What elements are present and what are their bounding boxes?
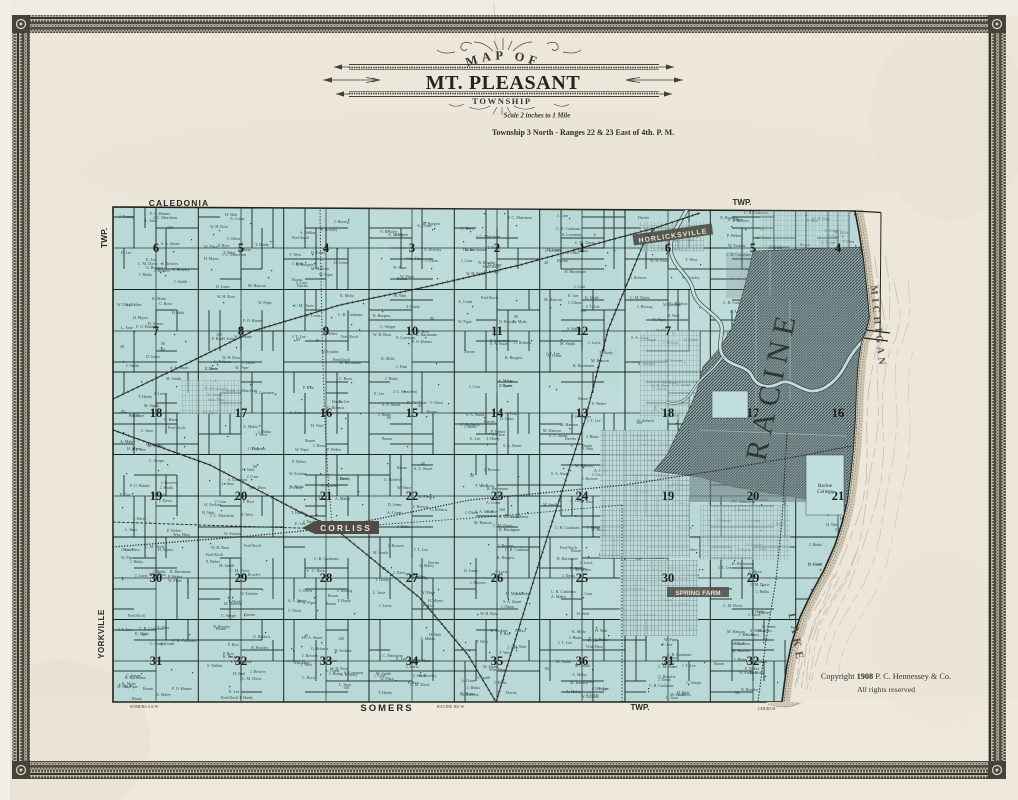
svg-text:E. Lee: E. Lee [374,391,385,396]
svg-text:S. A. Stuart: S. A. Stuart [414,466,433,471]
svg-text:6: 6 [153,241,159,255]
svg-text:S. A. Stuart: S. A. Stuart [466,412,485,417]
svg-text:R. Burgess: R. Burgess [373,313,391,318]
svg-text:W. H. Ross: W. H. Ross [373,332,392,337]
svg-text:J. Lavis: J. Lavis [748,612,761,617]
svg-text:80: 80 [545,666,549,671]
svg-text:80: 80 [253,464,257,469]
svg-text:C. Seeger: C. Seeger [686,680,702,685]
svg-text:W. Erskine: W. Erskine [334,648,352,653]
svg-text:T. Hardy: T. Hardy [228,599,242,604]
svg-text:P. Rice: P. Rice [228,642,239,647]
svg-text:R. Hartmann: R. Hartmann [573,363,594,368]
svg-text:Township 3 North - Ranges 22 &: Township 3 North - Ranges 22 & 23 East o… [492,128,674,137]
svg-text:T. Hardy: T. Hardy [138,394,152,399]
svg-text:M. Smith: M. Smith [560,341,575,346]
svg-text:J. Bowers: J. Bowers [545,248,561,253]
svg-text:CHURCH: CHURCH [758,706,775,711]
svg-text:N. Rowley: N. Rowley [251,645,268,650]
svg-text:D. Jones: D. Jones [334,260,348,265]
svg-text:J. Davis: J. Davis [494,680,507,685]
svg-text:G. Roberts: G. Roberts [461,692,479,697]
svg-text:P. Weber: P. Weber [168,574,183,579]
svg-text:22: 22 [406,489,419,503]
svg-text:D. Jones: D. Jones [146,354,160,359]
svg-text:J. Bowers: J. Bowers [250,669,266,674]
svg-text:21: 21 [320,489,333,503]
svg-text:L. Saxe: L. Saxe [339,682,351,687]
svg-text:160: 160 [734,690,740,695]
svg-text:R. Hartmann: R. Hartmann [416,332,437,337]
svg-text:N. Rowley: N. Rowley [340,672,357,677]
svg-text:W. H. Ross: W. H. Ross [211,545,230,550]
svg-text:5: 5 [750,241,756,255]
svg-text:J. Bowers: J. Bowers [302,653,318,658]
svg-text:P. Weber: P. Weber [292,459,307,464]
svg-text:J. Bowers: J. Bowers [484,467,500,472]
svg-text:Davies: Davies [759,610,771,615]
svg-text:J. Case: J. Case [461,258,473,263]
svg-text:J. Herzog: J. Herzog [334,219,349,224]
svg-text:80: 80 [161,341,165,346]
svg-text:J. Bowers: J. Bowers [388,543,404,548]
svg-text:19: 19 [150,489,163,503]
svg-text:D. Jones: D. Jones [762,624,776,629]
svg-text:E. Lee: E. Lee [470,436,481,441]
svg-text:K. Mohr: K. Mohr [381,356,395,361]
svg-text:H. Wait: H. Wait [311,423,324,428]
svg-text:J. Binks: J. Binks [397,524,410,529]
svg-text:J. Olsen: J. Olsen [289,485,302,490]
svg-text:H. Myers: H. Myers [506,591,522,596]
svg-text:S. A. Stuart: S. A. Stuart [503,443,522,448]
svg-text:MT. PLEASANT: MT. PLEASANT [426,72,581,94]
svg-text:Wm. Hess: Wm. Hess [249,485,266,490]
svg-text:A. Crane: A. Crane [461,678,476,683]
svg-text:F. O. Hunter: F. O. Hunter [130,483,151,488]
svg-text:M. Smith: M. Smith [543,502,558,507]
svg-text:C. Born: C. Born [159,301,172,306]
svg-text:5: 5 [238,241,244,255]
svg-text:M. Hanson: M. Hanson [575,463,593,468]
svg-text:C. Seeger: C. Seeger [221,613,237,618]
svg-text:J. Bowers: J. Bowers [470,580,486,585]
svg-text:J. Smith: J. Smith [477,675,490,680]
svg-text:15: 15 [406,406,419,420]
svg-text:J. Lavis: J. Lavis [586,692,599,697]
svg-text:J. Binks: J. Binks [139,272,152,277]
svg-text:E. Lee: E. Lee [568,293,579,298]
svg-text:TWP.: TWP. [631,703,650,712]
svg-text:Braun: Braun [427,409,437,414]
svg-text:Davies: Davies [638,215,650,220]
svg-text:J. T. Lee: J. T. Lee [595,686,609,691]
svg-text:T. Hardy: T. Hardy [337,598,351,603]
svg-text:3: 3 [409,241,415,255]
svg-text:TOWNSHIP: TOWNSHIP [472,96,531,106]
svg-text:L. Saxe: L. Saxe [125,527,137,532]
svg-text:J. Binks: J. Binks [464,424,477,429]
svg-text:TWP.: TWP. [99,228,109,248]
svg-text:P. Rice: P. Rice [218,243,229,248]
svg-text:SPRING FARM: SPRING FARM [675,590,720,597]
svg-text:J. Lavis: J. Lavis [205,366,218,371]
svg-text:H. Myers: H. Myers [204,256,220,261]
svg-text:T. West: T. West [289,252,302,257]
svg-text:40: 40 [418,403,422,408]
svg-text:Fred Koch: Fred Koch [244,543,261,548]
svg-text:W. Place: W. Place [400,274,414,279]
svg-text:J. Case: J. Case [574,284,586,289]
svg-text:W. Piper: W. Piper [458,319,473,324]
svg-text:4: 4 [323,241,330,255]
svg-text:M. Hanson: M. Hanson [474,520,492,525]
svg-text:N. Rowley: N. Rowley [320,227,337,232]
svg-text:T. West: T. West [241,512,254,517]
svg-text:N. Rowley: N. Rowley [321,483,338,488]
svg-text:13: 13 [576,406,589,420]
svg-text:Racine: Racine [818,484,833,489]
svg-text:P. Weber: P. Weber [592,401,607,406]
svg-text:M. Smith: M. Smith [166,376,181,381]
svg-text:H. Wait: H. Wait [677,690,690,695]
svg-text:W. H. Ross: W. H. Ross [650,258,669,263]
svg-text:C. B. Cushman: C. B. Cushman [139,626,163,631]
svg-text:H. Wait: H. Wait [233,671,246,676]
svg-text:J. C. Meachem: J. C. Meachem [476,234,501,239]
svg-text:C. M. Davis: C. M. Davis [723,603,743,608]
svg-text:16: 16 [832,406,845,420]
svg-text:TWP.: TWP. [733,198,752,207]
svg-text:6: 6 [665,241,671,255]
svg-text:H. Myers: H. Myers [133,315,149,320]
svg-text:J. C. Meachem: J. C. Meachem [210,513,235,518]
svg-text:F. O. Hunter: F. O. Hunter [150,211,171,216]
svg-text:8: 8 [238,324,244,338]
svg-text:J. Olsen: J. Olsen [299,588,312,593]
svg-text:T. West: T. West [475,483,488,488]
svg-text:S. Lorenson: S. Lorenson [490,338,509,343]
svg-text:J. Herzog: J. Herzog [413,504,428,509]
svg-text:L. Saxe: L. Saxe [290,410,302,415]
svg-text:J. Herzog: J. Herzog [119,214,134,219]
svg-text:T. West: T. West [685,257,698,262]
svg-text:P. Rice: P. Rice [408,680,419,685]
svg-text:R. Burgess: R. Burgess [423,221,441,226]
svg-text:33: 33 [320,654,333,668]
svg-text:Wm. Hess: Wm. Hess [123,547,140,552]
svg-text:S. Lorenson: S. Lorenson [255,390,274,395]
svg-text:J. T. Lee: J. T. Lee [118,627,132,632]
svg-text:R. Hartmann: R. Hartmann [557,556,578,561]
svg-text:80: 80 [514,314,518,319]
svg-text:J. Smith: J. Smith [126,363,139,368]
svg-text:P. Rice: P. Rice [223,651,234,656]
svg-text:E. Lee: E. Lee [588,638,599,643]
svg-text:H. Wait: H. Wait [667,313,680,318]
svg-text:7: 7 [665,324,671,338]
svg-text:40: 40 [297,599,301,604]
svg-text:160: 160 [167,225,173,230]
svg-text:19: 19 [662,489,675,503]
svg-text:R. Burgess: R. Burgess [497,555,515,560]
svg-text:D. Jones: D. Jones [464,568,478,573]
svg-text:14: 14 [491,406,504,420]
svg-text:J. Olsen: J. Olsen [501,604,514,609]
svg-text:W. Erskine: W. Erskine [728,243,746,248]
svg-text:32: 32 [747,654,760,668]
svg-text:J. Case: J. Case [557,213,569,218]
svg-text:40: 40 [315,338,319,343]
svg-text:R. Burgess: R. Burgess [505,355,523,360]
svg-text:20: 20 [747,489,760,503]
svg-text:Copyright 1908 P. C. Hennessey: Copyright 1908 P. C. Hennessey & Co. [821,672,951,681]
svg-text:M. Smith: M. Smith [376,671,391,676]
svg-text:32: 32 [235,654,248,668]
svg-text:E. Lee: E. Lee [121,250,132,255]
svg-text:Davies: Davies [244,612,256,617]
svg-text:Wm. Hess: Wm. Hess [406,256,423,261]
svg-text:J. Olsen: J. Olsen [425,258,438,263]
svg-text:R. Hartmann: R. Hartmann [499,527,520,532]
svg-text:F. O. Hunter: F. O. Hunter [172,686,193,691]
svg-text:F. O. Hunter: F. O. Hunter [412,339,433,344]
svg-text:W. Erskine: W. Erskine [289,471,307,476]
svg-text:RACINE RD W.: RACINE RD W. [437,704,465,709]
svg-text:W. H. Ross: W. H. Ross [330,666,349,671]
svg-text:34: 34 [406,654,419,668]
svg-text:J. Binks: J. Binks [809,542,822,547]
svg-text:N. Rowley: N. Rowley [172,267,189,272]
svg-text:P. Weber: P. Weber [491,429,506,434]
svg-text:160: 160 [499,507,505,512]
svg-text:T. Hardy: T. Hardy [378,690,392,695]
svg-text:28: 28 [320,571,333,585]
svg-text:Davies: Davies [332,399,344,404]
svg-text:G. Roberts: G. Roberts [514,340,532,345]
svg-text:J. T. Lee: J. T. Lee [718,565,732,570]
svg-text:K. Mohr: K. Mohr [585,295,599,300]
svg-text:W. Erskine: W. Erskine [490,628,508,633]
svg-text:G. Roberts: G. Roberts [384,477,402,482]
svg-text:Braun: Braun [571,548,581,553]
svg-text:J. Smith: J. Smith [413,673,426,678]
svg-text:J. Davis: J. Davis [658,677,671,682]
svg-text:31: 31 [662,654,675,668]
svg-text:E. Lee: E. Lee [120,492,131,497]
svg-text:C. B. Cushman: C. B. Cushman [556,226,580,231]
svg-text:J. Binks: J. Binks [385,376,398,381]
svg-text:T. Hardy: T. Hardy [406,304,420,309]
svg-text:J. C. Meachem: J. C. Meachem [393,389,418,394]
svg-text:K. Mohr: K. Mohr [572,629,586,634]
svg-text:W. Erskine: W. Erskine [224,531,242,536]
svg-text:P. Rice: P. Rice [303,385,314,390]
svg-text:W. Piper: W. Piper [235,365,250,370]
svg-text:J. Fink: J. Fink [506,411,517,416]
svg-text:29: 29 [747,571,760,585]
svg-text:J. Case: J. Case [247,474,259,479]
svg-text:H. Wait: H. Wait [595,628,608,633]
svg-text:H. Wait: H. Wait [394,293,407,298]
svg-text:H. Wait: H. Wait [172,310,185,315]
svg-text:A. Crane: A. Crane [808,561,823,566]
svg-text:18: 18 [662,406,675,420]
svg-text:W. Piper: W. Piper [295,447,310,452]
svg-text:L. Saxe: L. Saxe [121,325,133,330]
svg-text:T. Hardy: T. Hardy [239,695,253,700]
svg-text:P. Weber: P. Weber [327,447,342,452]
svg-text:J. T. Lee: J. T. Lee [682,663,696,668]
svg-text:G. Roberts: G. Roberts [629,275,647,280]
svg-text:W. Piper: W. Piper [258,300,273,305]
svg-text:Davies: Davies [297,283,309,288]
svg-text:S. A. Stuart: S. A. Stuart [304,635,323,640]
svg-text:M. Hanson: M. Hanson [311,266,329,271]
svg-text:W. Piper: W. Piper [652,317,667,322]
svg-text:T. Hardy: T. Hardy [336,476,350,481]
svg-text:2: 2 [494,241,500,255]
svg-text:Fred Koch: Fred Koch [481,295,498,300]
svg-text:36: 36 [576,654,589,668]
svg-text:Braun: Braun [397,465,407,470]
svg-text:Braun: Braun [143,686,153,691]
svg-text:Braun: Braun [735,641,745,646]
svg-text:Fred Koch: Fred Koch [168,425,185,430]
svg-text:C. B. Cushman: C. B. Cushman [649,683,673,688]
svg-text:Fred Koch: Fred Koch [221,695,238,700]
svg-text:30: 30 [150,571,163,585]
svg-text:P. Rice: P. Rice [487,509,498,514]
svg-text:80: 80 [121,409,125,414]
svg-text:J. Lavis: J. Lavis [154,391,167,396]
svg-text:W. H. Ross: W. H. Ross [210,224,229,229]
svg-text:K. Mohr: K. Mohr [340,293,354,298]
svg-text:M. Smith: M. Smith [373,550,388,555]
svg-text:J. Davis: J. Davis [562,573,575,578]
svg-text:M. Hanson: M. Hanson [732,648,750,653]
svg-text:C. Seeger: C. Seeger [150,641,166,646]
svg-text:160: 160 [159,347,165,352]
svg-text:Fred Koch: Fred Koch [292,235,309,240]
svg-text:W. Erskine: W. Erskine [321,349,339,354]
svg-text:Braun: Braun [382,436,392,441]
svg-text:P. Rice: P. Rice [212,336,223,341]
svg-text:C. Born: C. Born [339,376,352,381]
svg-text:J. Lavis: J. Lavis [379,603,392,608]
svg-text:J. Davis: J. Davis [499,383,512,388]
svg-text:R. Hartmann: R. Hartmann [125,675,146,680]
svg-text:J. Case: J. Case [583,679,595,684]
svg-text:7: 7 [153,324,159,338]
svg-text:S. A. Stuart: S. A. Stuart [161,241,180,246]
svg-text:W. Erskine: W. Erskine [739,670,757,675]
svg-text:21: 21 [832,489,845,503]
svg-text:P. Rice: P. Rice [129,413,140,418]
svg-text:C. Born: C. Born [164,417,177,422]
svg-text:P. Rice: P. Rice [515,628,526,633]
svg-text:J. Lavis: J. Lavis [588,340,601,345]
svg-text:H. Wait: H. Wait [429,632,442,637]
svg-text:Braun: Braun [326,601,336,606]
svg-text:J. Binks: J. Binks [258,429,271,434]
svg-text:35: 35 [491,654,504,668]
svg-text:R. Hartmann: R. Hartmann [732,561,753,566]
svg-text:Davies: Davies [557,258,569,263]
svg-text:J. Davis: J. Davis [313,443,326,448]
svg-text:J. Olsen: J. Olsen [430,400,443,405]
svg-text:F. O. Hunter: F. O. Hunter [243,318,264,323]
svg-text:J. Bowers: J. Bowers [498,543,514,548]
svg-text:J. Case: J. Case [581,591,593,596]
svg-text:80: 80 [430,316,434,321]
svg-text:40: 40 [544,260,548,265]
svg-text:Fred Koch: Fred Koch [128,613,145,618]
svg-text:CALEDONIA: CALEDONIA [149,198,209,208]
svg-text:J. Bowers: J. Bowers [162,261,178,266]
svg-text:W. H. Ross: W. H. Ross [217,294,236,299]
svg-text:12: 12 [576,324,589,338]
svg-text:H. Wait: H. Wait [581,446,594,451]
svg-text:S. Walker: S. Walker [207,663,223,668]
svg-text:Wm. Hess: Wm. Hess [586,644,603,649]
svg-text:G. Roberts: G. Roberts [311,646,329,651]
svg-text:C. Born: C. Born [746,632,759,637]
svg-text:80: 80 [387,415,391,420]
svg-text:18: 18 [150,406,163,420]
svg-text:A. Maley: A. Maley [156,692,171,697]
svg-text:27: 27 [406,571,419,585]
svg-text:25: 25 [576,571,589,585]
svg-text:Davies: Davies [464,349,476,354]
svg-text:Braun: Braun [714,661,724,666]
svg-text:D. Jones: D. Jones [216,284,230,289]
svg-text:J. T. Lee: J. T. Lee [414,547,428,552]
svg-text:T. West: T. West [300,662,313,667]
svg-text:E. Lee: E. Lee [662,642,673,647]
svg-text:J. Fink: J. Fink [292,261,303,266]
svg-text:S. Walker: S. Walker [126,302,142,307]
svg-text:R. Hartmann: R. Hartmann [465,247,486,252]
svg-text:24: 24 [576,489,589,503]
svg-text:C. B. Cushman: C. B. Cushman [172,638,196,643]
svg-text:A. Crane: A. Crane [306,313,321,318]
svg-text:N. Rowley: N. Rowley [213,624,230,629]
svg-text:C. Born: C. Born [461,226,474,231]
svg-text:L. Saxe: L. Saxe [373,590,385,595]
svg-text:26: 26 [491,571,504,585]
svg-text:29: 29 [235,571,248,585]
svg-text:T. Hardy: T. Hardy [375,577,389,582]
svg-text:C. M. Davis: C. M. Davis [630,295,650,300]
svg-text:H. Wait: H. Wait [826,522,839,527]
svg-text:A. Maley: A. Maley [551,594,566,599]
svg-text:CORLISS: CORLISS [320,523,372,533]
svg-text:P. Weber: P. Weber [167,528,182,533]
svg-text:J. Case: J. Case [215,499,227,504]
svg-text:A. Maley: A. Maley [335,496,350,501]
svg-text:A. Maley: A. Maley [566,689,581,694]
svg-text:T. Hardy: T. Hardy [599,350,613,355]
svg-text:J. Lavis: J. Lavis [242,360,255,365]
svg-text:C. M. Davis: C. M. Davis [242,676,262,681]
svg-text:J. Olsen: J. Olsen [568,300,581,305]
svg-text:1: 1 [579,241,585,255]
svg-text:11: 11 [491,324,503,338]
svg-text:H. Wait: H. Wait [577,611,590,616]
svg-text:20: 20 [235,489,248,503]
svg-text:31: 31 [150,654,163,668]
